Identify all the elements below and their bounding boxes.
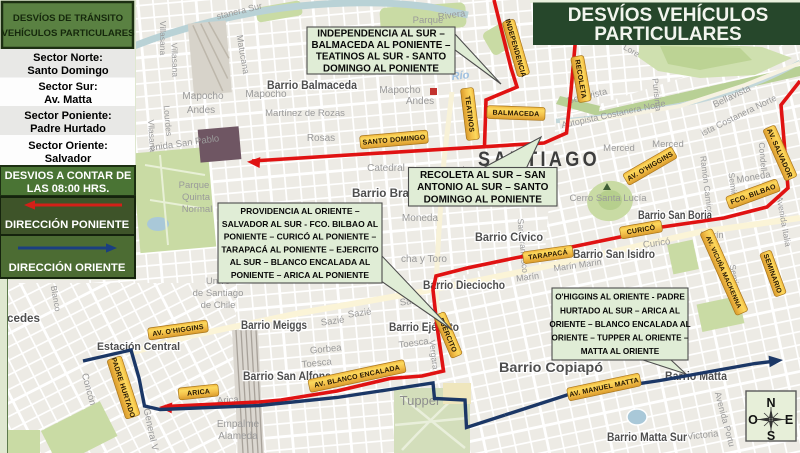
svg-text:PONIENTE – ARICA AL PONIENTE: PONIENTE – ARICA AL PONIENTE [231,270,370,280]
svg-text:Estación Central: Estación Central [97,341,180,353]
svg-text:Villasana: Villasana [169,43,180,78]
svg-text:Andes: Andes [406,96,434,107]
svg-text:TEATINOS AL SUR - SANTO: TEATINOS AL SUR - SANTO [316,52,447,63]
svg-text:Moneda: Moneda [402,213,439,224]
svg-text:Catedral: Catedral [367,163,405,174]
svg-text:TARAPACÁ AL PONIENTE – EJERCIT: TARAPACÁ AL PONIENTE – EJERCITO [221,244,379,254]
svg-text:O: O [748,413,758,427]
svg-text:ORIENTE – TUPPER AL ORIENTE –: ORIENTE – TUPPER AL ORIENTE – [552,334,689,343]
svg-text:Merced: Merced [603,143,635,154]
svg-text:Rosas: Rosas [307,133,335,144]
svg-text:DIRECCIÓN ORIENTE: DIRECCIÓN ORIENTE [9,261,126,274]
svg-text:Barrio San Isidro: Barrio San Isidro [573,249,655,261]
svg-text:Barrio Cívico: Barrio Cívico [475,232,543,244]
svg-text:PARTICULARES: PARTICULARES [594,24,741,45]
svg-text:HURTADO AL SUR – ARICA AL: HURTADO AL SUR – ARICA AL [560,306,680,315]
svg-text:DESVÍOS DE TRÁNSITO: DESVÍOS DE TRÁNSITO [13,12,124,24]
svg-text:MATTA AL ORIENTE: MATTA AL ORIENTE [581,347,660,356]
svg-text:de Santiago: de Santiago [193,288,244,299]
svg-text:Alameda: Alameda [218,431,258,442]
svg-text:Padre Hurtado: Padre Hurtado [30,123,106,135]
svg-text:DESVIOS A CONTAR DE: DESVIOS A CONTAR DE [5,170,132,182]
svg-text:E: E [785,413,793,427]
svg-text:VEHÍCULOS PARTICULARES: VEHÍCULOS PARTICULARES [1,27,135,39]
svg-text:Normal: Normal [182,204,213,215]
svg-text:Andes: Andes [187,105,215,116]
svg-text:Salvador: Salvador [45,153,92,165]
svg-text:PROVIDENCIA AL ORIENTE –: PROVIDENCIA AL ORIENTE – [240,206,359,216]
svg-text:ANTONIO AL SUR – SANTO: ANTONIO AL SUR – SANTO [417,182,549,193]
svg-text:INDEPENDENCIA AL SUR –: INDEPENDENCIA AL SUR – [317,29,445,40]
svg-text:ORIENTE – BLANCO ENCALADA AL: ORIENTE – BLANCO ENCALADA AL [549,320,690,329]
svg-text:Cerro Santa Lucía: Cerro Santa Lucía [569,193,647,204]
svg-text:Villasana: Villasana [158,21,168,56]
svg-text:PONIENTE – CURICÓ AL PONIENTE: PONIENTE – CURICÓ AL PONIENTE – [224,231,377,242]
svg-text:Barrio Matta Sur: Barrio Matta Sur [607,432,687,444]
svg-text:Empalme: Empalme [217,419,260,430]
svg-text:Barrio Meiggs: Barrio Meiggs [241,320,307,332]
svg-text:DOMINGO AL PONIENTE: DOMINGO AL PONIENTE [323,63,439,74]
svg-text:Barrio Balmaceda: Barrio Balmaceda [267,80,358,92]
svg-text:RECOLETA AL SUR – SAN: RECOLETA AL SUR – SAN [420,170,546,181]
svg-text:DOMINGO AL PONIENTE: DOMINGO AL PONIENTE [424,195,543,206]
svg-text:Mapocho: Mapocho [182,91,224,102]
svg-text:Sector Sur:: Sector Sur: [38,81,97,93]
svg-text:SALVADOR AL SUR - FCO. BILBAO: SALVADOR AL SUR - FCO. BILBAO AL [222,219,378,229]
svg-text:de Chile: de Chile [201,300,236,311]
svg-text:BALMACEDA AL PONIENTE –: BALMACEDA AL PONIENTE – [312,40,452,51]
svg-text:Mapocho: Mapocho [379,85,421,96]
svg-text:Barrio Copiapó: Barrio Copiapó [499,360,603,375]
svg-text:O'HIGGINS AL ORIENTE - PADRE: O'HIGGINS AL ORIENTE - PADRE [555,293,685,302]
svg-text:LAS 08:00 HRS.: LAS 08:00 HRS. [27,183,110,195]
svg-text:Sector Norte:: Sector Norte: [33,52,103,64]
svg-text:Av. Matta: Av. Matta [44,94,93,106]
svg-text:DIRECCIÓN PONIENTE: DIRECCIÓN PONIENTE [5,218,130,231]
svg-text:Sector Oriente:: Sector Oriente: [28,140,107,152]
svg-text:AL SUR – BLANCO ENCALADA AL: AL SUR – BLANCO ENCALADA AL [230,257,370,267]
svg-text:Martínez de Rozas: Martínez de Rozas [265,108,345,119]
svg-text:DESVÍOS VEHÍCULOS: DESVÍOS VEHÍCULOS [568,4,769,26]
svg-text:Santo Domingo: Santo Domingo [27,65,109,77]
svg-text:Sector Poniente:: Sector Poniente: [24,110,111,122]
svg-text:cha y Toro: cha y Toro [401,254,447,265]
svg-text:Parque: Parque [179,180,210,191]
svg-text:Quinta: Quinta [182,192,211,203]
